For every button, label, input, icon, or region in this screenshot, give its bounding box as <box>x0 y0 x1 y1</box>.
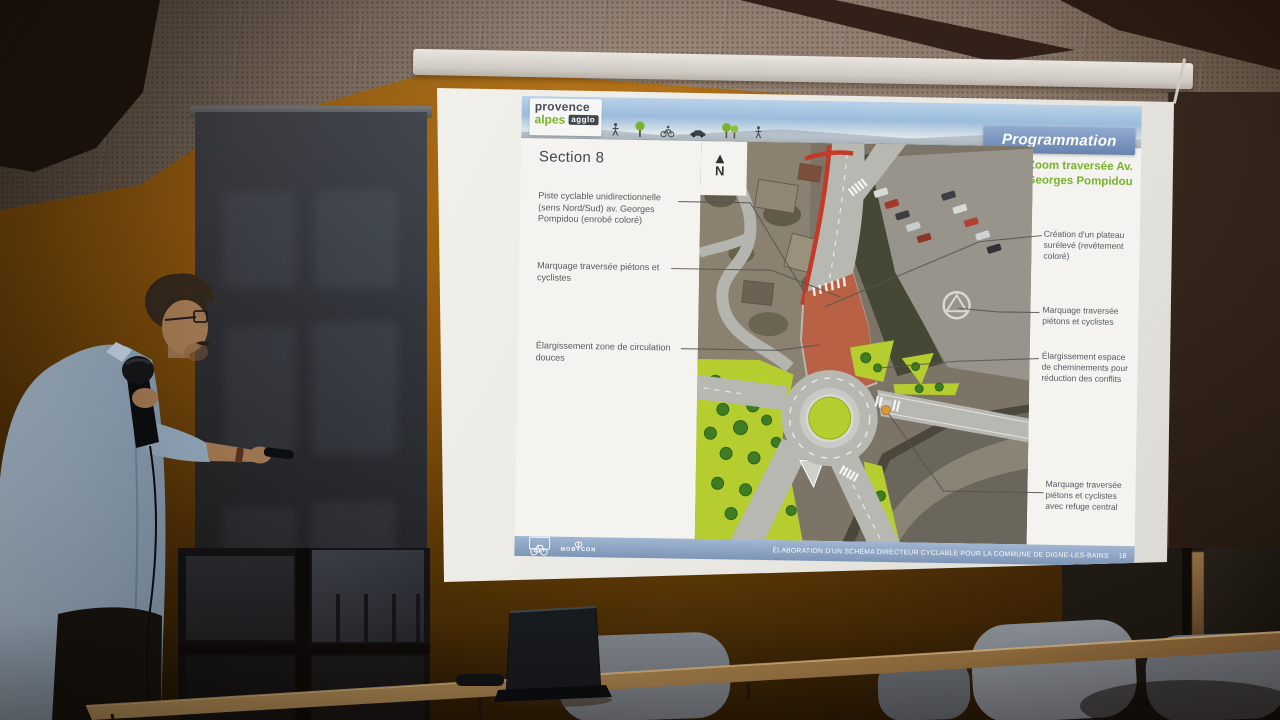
aerial-map <box>695 141 1034 544</box>
pedestrian-icon <box>754 126 762 139</box>
cyclist-icon <box>660 125 674 137</box>
logo-badge-agglo: agglo <box>568 115 598 125</box>
dark-wall-right <box>1168 92 1280 562</box>
footer-title: ÉLABORATION D'UN SCHÉMA DIRECTEUR CYCLAB… <box>772 547 1108 560</box>
annotation-right-2: Marquage traversée piétons et cyclistes <box>1042 305 1134 329</box>
refuge-marker <box>881 406 890 415</box>
annotation-left-3: Élargissement zone de circulation douces <box>536 340 678 366</box>
window-reflection <box>313 322 397 454</box>
trees-icon <box>721 122 739 138</box>
annotation-right-1: Création d'un plateau surélevé (revêteme… <box>1043 229 1136 264</box>
header-icon-row <box>611 119 762 139</box>
north-arrow: ▲ N <box>709 153 731 177</box>
remote-case <box>456 674 504 686</box>
slide: provence alpes agglo Programmation Secti… <box>514 96 1142 566</box>
pedestrian-icon <box>611 122 619 136</box>
slide-footer-bar: MOBYCON ÉLABORATION D'UN SCHÉMA DIRECTEU… <box>514 536 1134 566</box>
conference-room-photo: provence alpes agglo Programmation Secti… <box>0 0 1280 720</box>
logo-text-alpes: alpes <box>535 113 566 126</box>
car-icon <box>689 129 706 138</box>
presenter-head <box>145 273 214 361</box>
partner-logos: MOBYCON <box>514 536 596 557</box>
section-title: Section 8 <box>539 148 605 166</box>
logo-text-provence: provence <box>535 100 597 113</box>
page-number: 18 <box>1119 552 1127 559</box>
annotation-left-1: Piste cyclable unidirectionnelle (sens N… <box>538 190 681 227</box>
annotation-left-2: Marquage traversée piétons et cyclistes <box>537 260 679 286</box>
provence-alpes-agglo-logo: provence alpes agglo <box>529 98 602 136</box>
window-reflection <box>315 190 397 288</box>
bike-sketch-logo <box>528 536 550 556</box>
annotation-right-4: Marquage traversée piétons et cyclistes … <box>1045 479 1132 514</box>
presenter-forearm <box>206 442 257 462</box>
mobycon-logo: MOBYCON <box>560 540 596 553</box>
projection-screen: provence alpes agglo Programmation Secti… <box>437 84 1174 582</box>
furniture <box>0 600 1280 720</box>
tree-icon <box>634 121 645 137</box>
annotation-right-3: Élargissement espace de cheminements pou… <box>1041 351 1134 386</box>
